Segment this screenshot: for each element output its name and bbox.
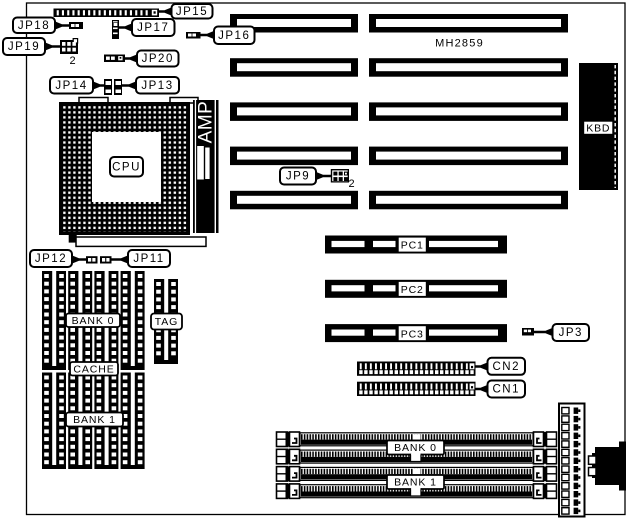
svg-text:BANK 1: BANK 1 (73, 414, 116, 426)
svg-text:CN2: CN2 (492, 361, 520, 373)
svg-text:JP16: JP16 (218, 30, 250, 42)
svg-text:CPU: CPU (112, 161, 141, 173)
svg-text:JP17: JP17 (137, 22, 169, 34)
svg-text:2: 2 (348, 178, 354, 190)
svg-text:JP9: JP9 (286, 171, 310, 183)
svg-text:BANK 1: BANK 1 (394, 477, 437, 489)
svg-text:JP20: JP20 (142, 53, 174, 65)
svg-text:JP14: JP14 (55, 80, 87, 92)
svg-text:JP19: JP19 (8, 41, 40, 53)
svg-text:JP18: JP18 (18, 20, 50, 32)
svg-text:TAG: TAG (155, 316, 179, 328)
svg-text:CN1: CN1 (492, 384, 520, 396)
svg-text:MH2859: MH2859 (435, 38, 484, 50)
svg-text:JP15: JP15 (176, 6, 208, 18)
svg-text:JP12: JP12 (35, 253, 67, 265)
svg-text:2: 2 (69, 55, 75, 67)
svg-text:PC2: PC2 (401, 284, 424, 296)
svg-text:CACHE: CACHE (73, 363, 114, 375)
svg-text:JP11: JP11 (133, 253, 164, 265)
svg-text:KBD: KBD (586, 123, 610, 135)
svg-text:BANK 0: BANK 0 (72, 315, 115, 327)
svg-text:BANK 0: BANK 0 (394, 442, 437, 454)
svg-text:JP13: JP13 (141, 80, 173, 92)
svg-text:PC3: PC3 (401, 328, 424, 340)
svg-text:JP3: JP3 (559, 327, 583, 339)
svg-text:PC1: PC1 (401, 240, 424, 252)
svg-text:AMP: AMP (196, 101, 217, 144)
